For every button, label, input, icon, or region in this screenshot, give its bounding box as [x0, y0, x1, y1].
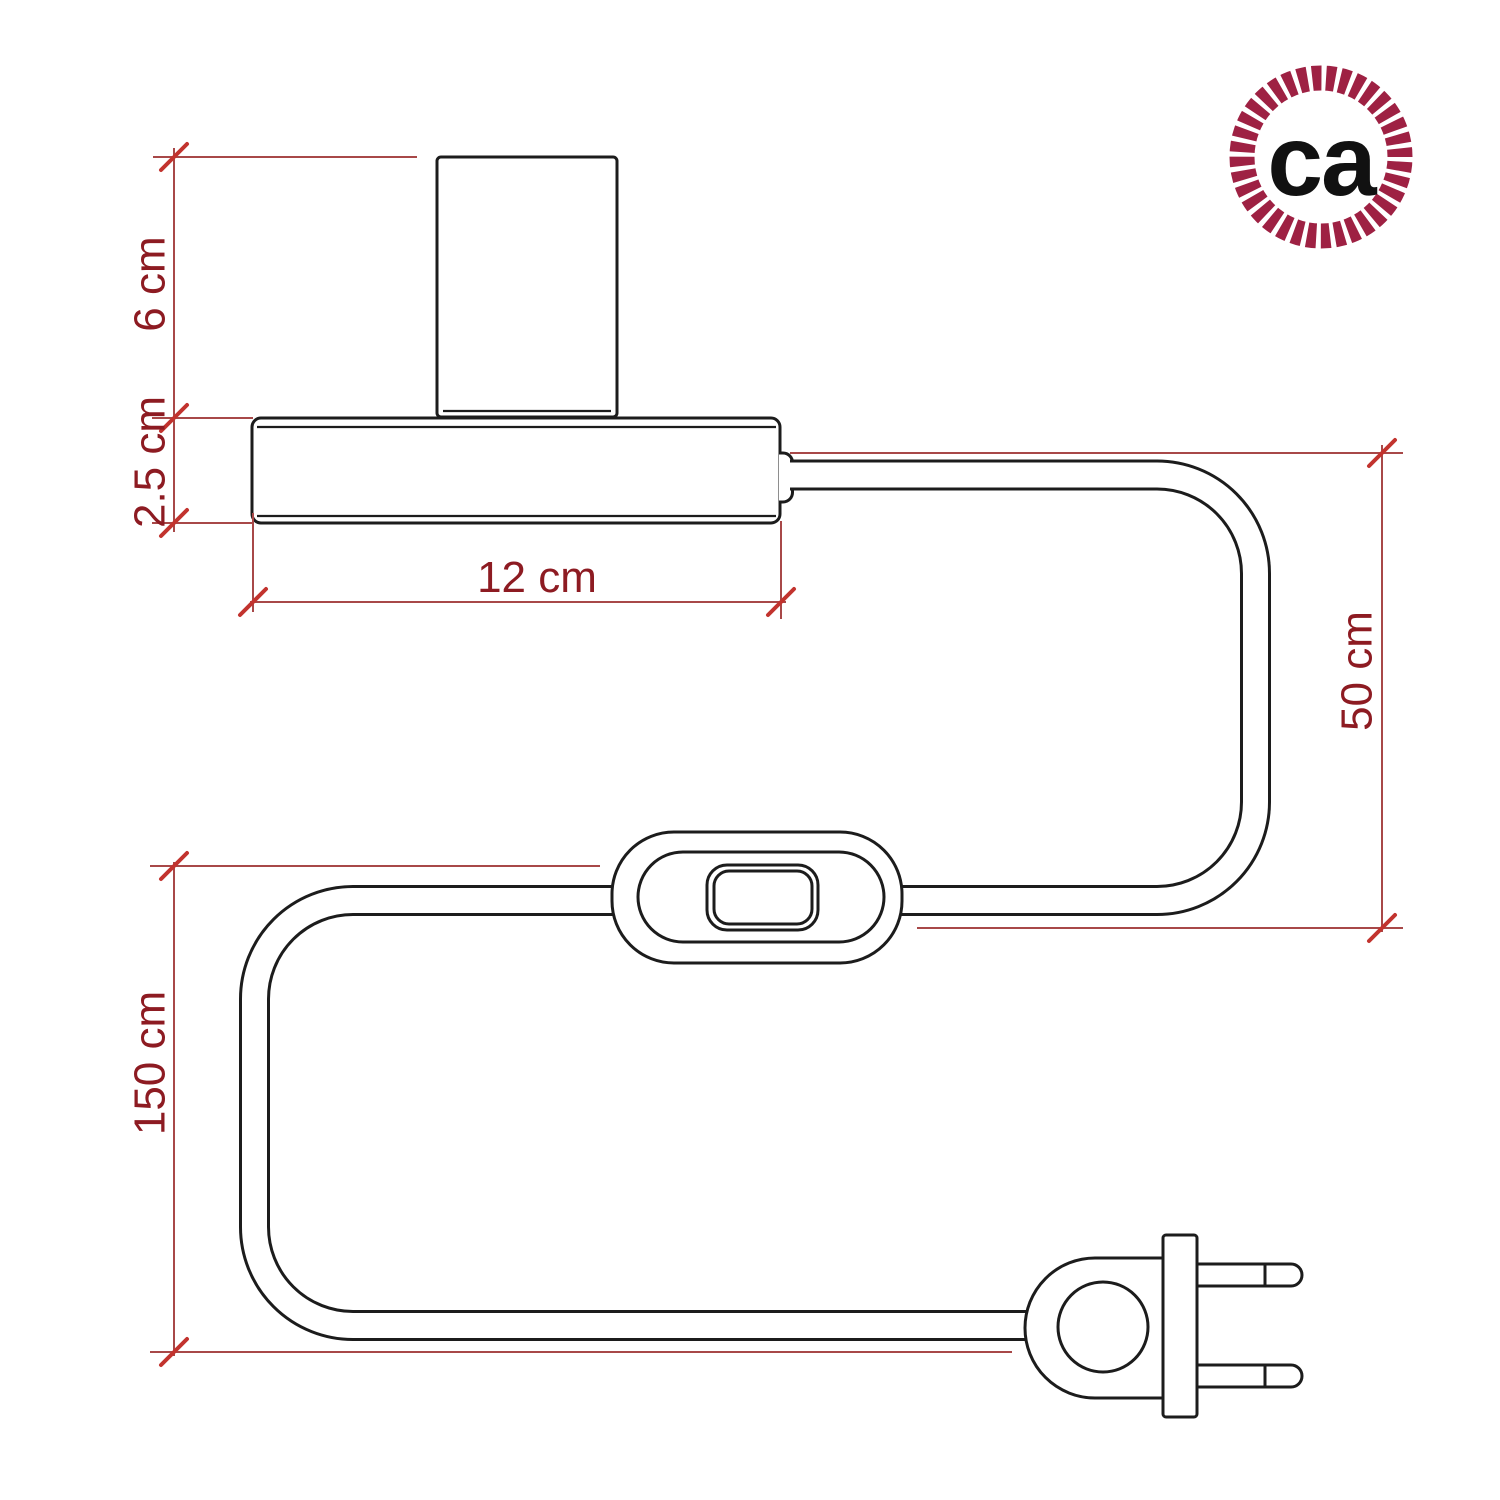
dimension-measure-lines [174, 148, 1382, 1356]
dimension-labels: 6 cm 2.5 cm 12 cm 50 cm 150 cm [126, 236, 1382, 1135]
label-socket-height: 6 cm [126, 236, 175, 331]
label-base-width: 12 cm [477, 553, 597, 602]
label-cable-length: 150 cm [126, 991, 175, 1135]
lamp-dimension-drawing: 6 cm 2.5 cm 12 cm 50 cm 150 cm ca [0, 0, 1500, 1500]
plug-pin-top [1190, 1264, 1302, 1286]
plug-cord-grommet-circle [1058, 1282, 1148, 1372]
plug-pin-bottom [1190, 1365, 1302, 1387]
brand-logo: ca [1242, 78, 1400, 236]
lamp-base-outline [252, 418, 780, 523]
plug-face-plate [1163, 1235, 1197, 1417]
lamp-base [252, 418, 793, 523]
dimension-ticks [161, 144, 1395, 1365]
power-plug [1025, 1235, 1302, 1417]
inline-switch [612, 832, 902, 963]
lamp-socket-outline [437, 157, 617, 417]
lamp-socket [437, 157, 617, 417]
logo-text: ca [1267, 105, 1378, 217]
dimension-extension-lines [150, 157, 1403, 1352]
label-base-height: 2.5 cm [126, 396, 175, 528]
label-cord-drop: 50 cm [1333, 611, 1382, 731]
dimension-diagram-canvas: 6 cm 2.5 cm 12 cm 50 cm 150 cm ca [0, 0, 1500, 1500]
